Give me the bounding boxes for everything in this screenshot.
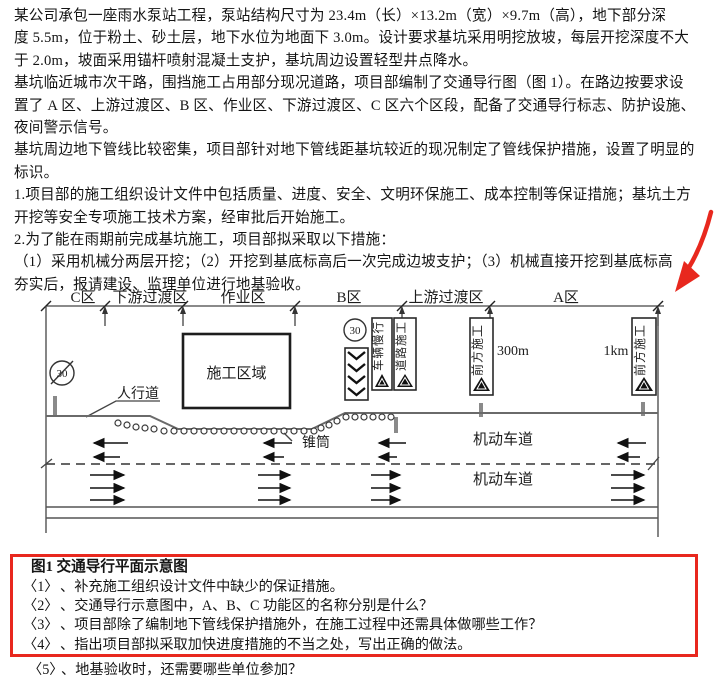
chevron-board-icon [345,348,368,400]
zone-label-c: C区 [70,290,95,306]
sidewalk-label: 人行道 [117,386,159,402]
text-line: 开挖等安全专项施工技术方案，经审批后开始施工。 [14,207,714,229]
question-text: 、交通导行示意图中，A、B、C 功能区的名称分别是什么？ [60,597,433,616]
text-line: 1.项目部的施工组织设计文件中包括质量、进度、安全、文明环保施工、成本控制等保证… [14,184,714,206]
zone-label-a: A区 [553,290,579,306]
sign-construction-ahead-label: 前方施工 [632,324,647,376]
distance-label-1km: 1km [604,344,629,359]
text-line: 标识。 [14,162,714,184]
zone-label-downstream: 下游过渡区 [112,289,187,306]
text-line: （1）采用机械分两层开挖；（2）开挖到基底标高后一次完成边坡支护；（3）机械直接… [14,251,714,273]
document-body-text: 某公司承包一座雨水泵站工程，泵站结构尺寸为 23.4m（长）×13.2m（宽）×… [14,5,714,296]
text-line: 度 5.5m，位于粉土、砂土层，地下水位为地面下 3.0m。设计要求基坑采用明挖… [14,27,714,49]
speed-limit-30-sign-icon: 30 [344,319,366,341]
question-item: 〈2〉 、交通导行示意图中，A、B、C 功能区的名称分别是什么？ [23,597,689,616]
sign-post [479,403,483,417]
question-text: 、地基验收时，还需要哪些单位参加？ [61,661,302,680]
zone-label-work: 作业区 [220,289,265,306]
question-text: 、项目部除了编制地下管线保护措施外，在施工过程中还需具体做哪些工作？ [60,616,542,635]
text-line: 基坑周边地下管线比较密集，项目部针对地下管线距基坑较近的现况制定了管线保护措施，… [14,139,714,161]
sign-slow-vehicles-label: 车辆慢行 [371,321,385,371]
figure-question-box: 图1 交通导行平面示意图 〈1〉 、补充施工组织设计文件中缺少的保证措施。 〈2… [10,554,698,657]
text-line: 置了 A 区、上游过渡区、B 区、作业区、下游过渡区、C 区六个区段，配备了交通… [14,95,714,117]
text-line: 2.为了能在雨期前完成基坑施工，项目部拟采取以下措施： [14,229,714,251]
cones-label: 锥筒 [302,434,330,451]
motor-lane-label-lower: 机动车道 [473,471,533,488]
zone-label-upstream: 上游过渡区 [408,289,483,306]
zone-label-b: B区 [336,290,361,306]
traffic-diagram-svg: C区 下游过渡区 作业区 B区 上游过渡区 A区 30 30 车辆慢行 道路施工 [0,284,716,546]
sign-construction-ahead-1km: 前方施工 [632,318,656,395]
question-number: 〈4〉 [23,636,60,655]
question-item: 〈3〉 、项目部除了编制地下管线保护措施外，在施工过程中还需具体做哪些工作？ [23,616,689,635]
sign-slow-vehicles: 车辆慢行 [371,318,392,390]
sign-construction-ahead-300m: 前方施工 [470,318,494,395]
text-line: 某公司承包一座雨水泵站工程，泵站结构尺寸为 23.4m（长）×13.2m（宽）×… [14,5,714,27]
exam-document-page: { "document": { "body_lines": [ "某公司承包一座… [0,0,716,670]
question-number: 〈5〉 [28,661,61,680]
sign-road-construction-label: 道路施工 [394,321,408,371]
cones-leader-line [284,433,292,441]
motor-lane-label-upper: 机动车道 [473,431,533,448]
speed-limit-value: 30 [350,325,362,337]
lane-direction-arrows [90,443,646,500]
sign-post [394,417,398,433]
figure-title: 图1 交通导行平面示意图 [31,558,689,578]
sign-post [53,396,57,416]
text-line: 于 2.0m，坡面采用锚杆喷射混凝土支护，基坑周边设置轻型井点降水。 [14,50,714,72]
question-text: 、指出项目部拟采取加快进度措施的不当之处，写出正确的做法。 [60,636,471,655]
sign-road-construction: 道路施工 [394,318,416,390]
question-text: 、补充施工组织设计文件中缺少的保证措施。 [60,578,344,597]
text-line: 基坑临近城市次干路，围挡施工占用部分现况道路，项目部编制了交通导行图（图 1）。… [14,72,714,94]
question-item: 〈4〉 、指出项目部拟采取加快进度措施的不当之处，写出正确的做法。 [23,636,689,655]
question-item: 〈1〉 、补充施工组织设计文件中缺少的保证措施。 [23,578,689,597]
sign-construction-ahead-label: 前方施工 [470,324,485,376]
question-number: 〈2〉 [23,597,60,616]
question-number: 〈1〉 [23,578,60,597]
text-line: 夜间警示信号。 [14,117,714,139]
clipped-question-item: 〈5〉 、地基验收时，还需要哪些单位参加？ [28,661,302,680]
speed-limit-end-value: 30 [57,368,69,380]
distance-label-300m: 300m [497,344,529,359]
speed-limit-end-sign-icon: 30 [50,361,74,385]
traffic-diversion-diagram: C区 下游过渡区 作业区 B区 上游过渡区 A区 30 30 车辆慢行 道路施工 [0,284,716,546]
question-number: 〈3〉 [23,616,60,635]
traffic-cones-row [115,414,394,434]
construction-area-label: 施工区域 [206,365,266,382]
sidewalk-leader-line [86,401,160,417]
